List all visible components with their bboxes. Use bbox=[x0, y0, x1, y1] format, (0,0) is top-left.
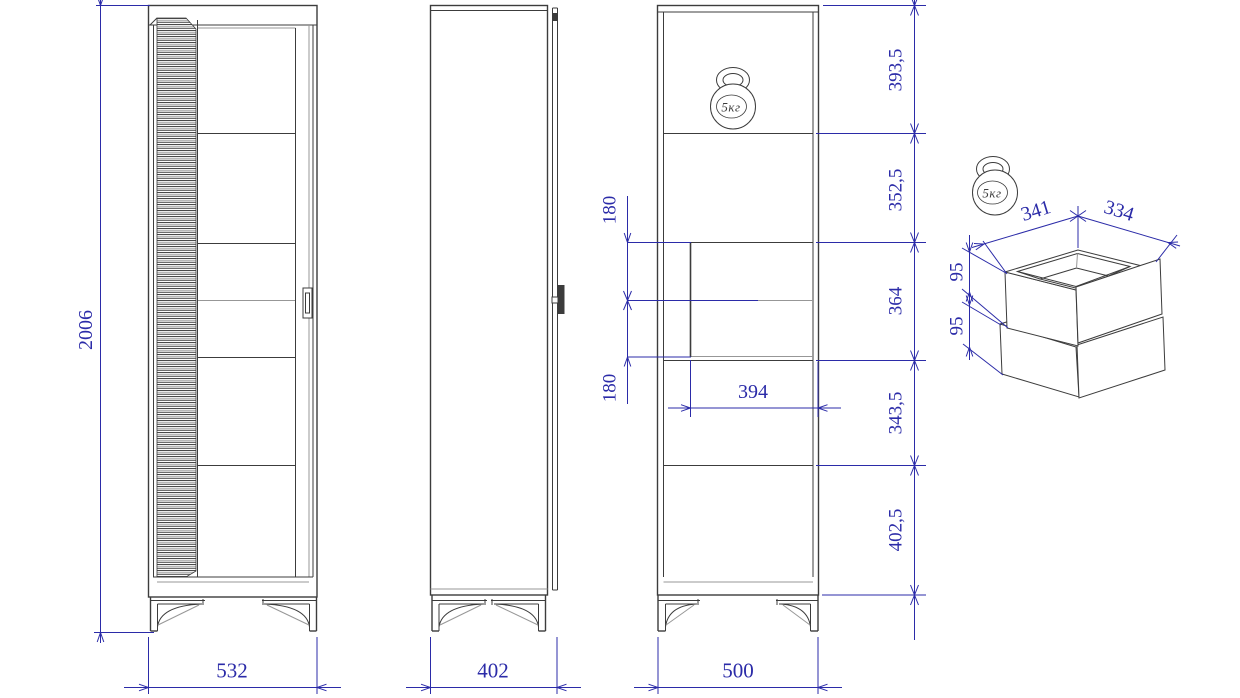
dim-label-front-width: 532 bbox=[216, 661, 248, 682]
ribbed-door-texture bbox=[157, 18, 196, 577]
kettlebell-icon bbox=[711, 68, 756, 130]
dim-label-drawer-height-2: 95 bbox=[948, 317, 967, 336]
dim-label-segment-3: 364 bbox=[887, 287, 906, 316]
dim-label-side-depth: 402 bbox=[477, 661, 509, 682]
section-right-leg bbox=[776, 595, 818, 631]
dim-label-segment-2: 352,5 bbox=[887, 169, 906, 212]
side-left-leg bbox=[432, 595, 487, 631]
side-right-leg bbox=[491, 595, 546, 631]
dim-label-overall-height: 2006 bbox=[76, 310, 96, 350]
front-right-leg bbox=[262, 597, 317, 631]
door-handle-front bbox=[303, 288, 312, 318]
dim-label-offset-bottom: 180 bbox=[601, 374, 620, 403]
dim-label-drawer-height-1: 95 bbox=[948, 263, 967, 282]
dim-label-section-width: 500 bbox=[722, 661, 754, 682]
dim-label-segment-1: 393,5 bbox=[887, 49, 906, 92]
dim-label-drawer-opening: 394 bbox=[738, 382, 768, 402]
dim-label-segment-5: 402,5 bbox=[887, 509, 906, 552]
door-handle-side bbox=[552, 285, 565, 314]
dim-label-offset-top: 180 bbox=[601, 196, 620, 225]
front-left-leg bbox=[151, 597, 206, 631]
front-view bbox=[149, 6, 318, 632]
technical-drawing-canvas: 2006 532 402 500 394 180 180 393,5 352,5… bbox=[0, 0, 1240, 698]
dim-label-segment-4: 343,5 bbox=[887, 392, 906, 435]
load-capacity-label-detail: 5кг bbox=[982, 187, 1001, 200]
load-capacity-label-section: 5кг bbox=[721, 101, 740, 114]
side-view bbox=[431, 6, 565, 632]
drawing-linework bbox=[0, 0, 1240, 698]
section-left-leg bbox=[658, 595, 700, 631]
